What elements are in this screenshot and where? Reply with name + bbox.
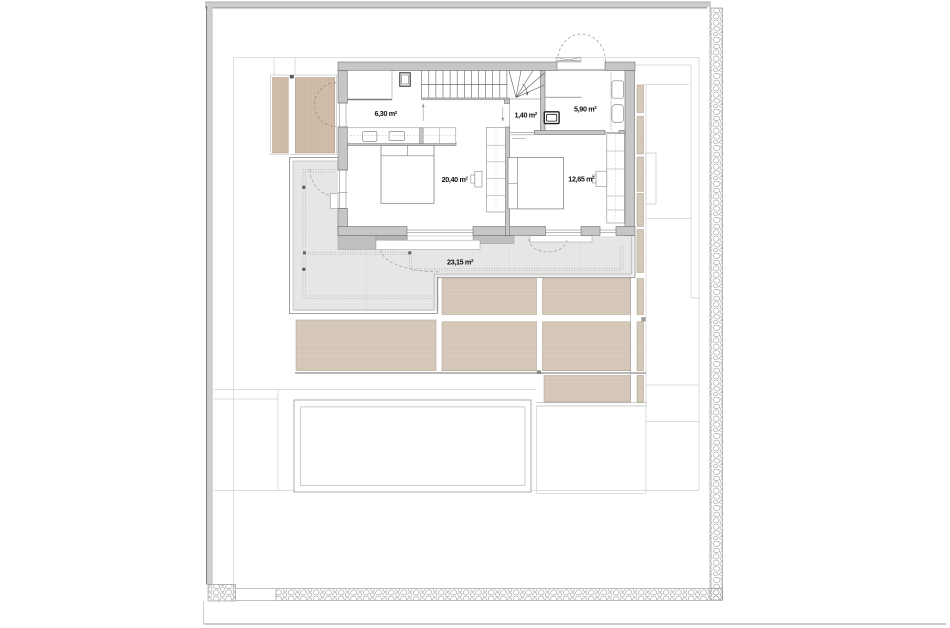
svg-text:20,40 m2: 20,40 m2 — [442, 175, 469, 184]
svg-text:23,15 m2: 23,15 m2 — [447, 257, 474, 266]
svg-text:6,30 m2: 6,30 m2 — [375, 109, 398, 118]
svg-text:12,65 m2: 12,65 m2 — [568, 174, 595, 183]
svg-text:1,40 m2: 1,40 m2 — [515, 110, 538, 119]
svg-text:5,90 m2: 5,90 m2 — [574, 104, 597, 113]
